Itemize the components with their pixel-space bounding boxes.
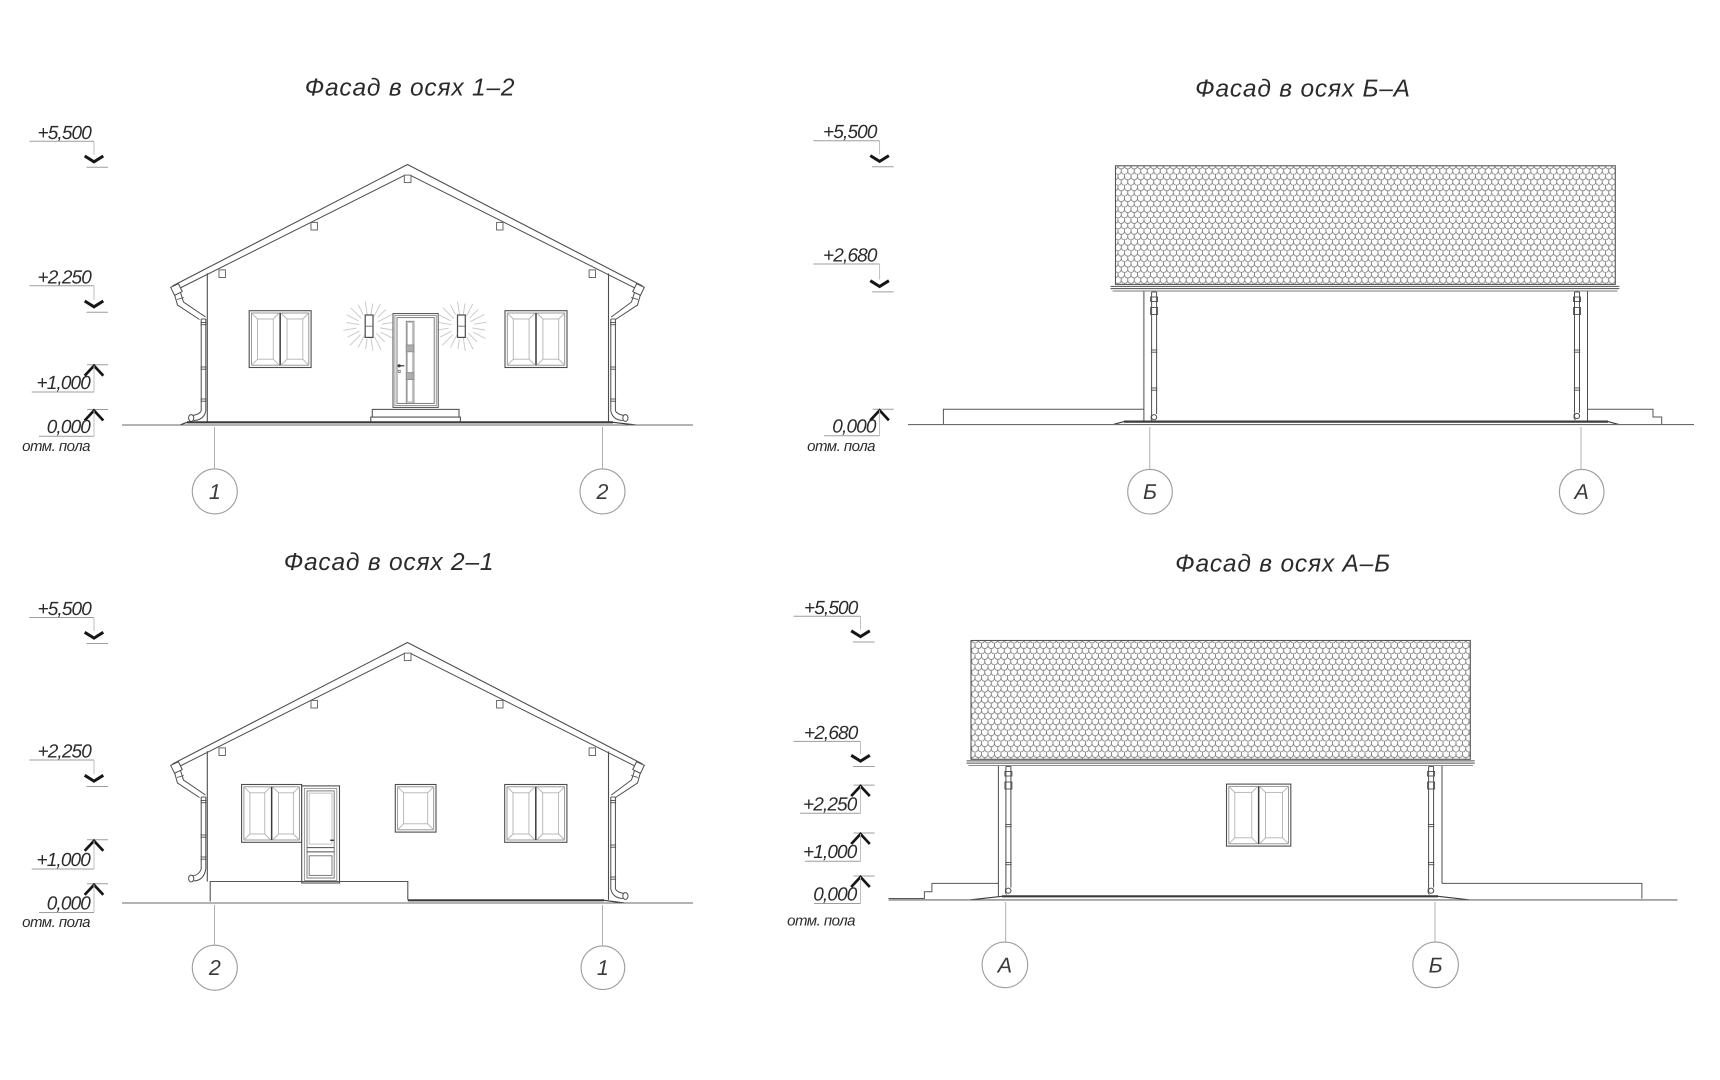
svg-text:Фасад в осях Б–А: Фасад в осях Б–А xyxy=(1195,76,1411,103)
svg-text:+2,680: +2,680 xyxy=(823,246,878,267)
svg-text:+5,500: +5,500 xyxy=(823,122,878,143)
svg-text:+5,500: +5,500 xyxy=(804,598,859,619)
svg-text:1: 1 xyxy=(597,956,609,980)
svg-text:0,000: 0,000 xyxy=(813,885,858,906)
svg-text:отм. пола: отм. пола xyxy=(22,914,90,931)
svg-text:0,000: 0,000 xyxy=(47,894,92,915)
svg-text:+2,680: +2,680 xyxy=(804,723,859,744)
svg-text:Фасад в осях 1–2: Фасад в осях 1–2 xyxy=(305,75,516,102)
svg-text:+1,000: +1,000 xyxy=(36,850,91,871)
svg-text:+1,000: +1,000 xyxy=(36,373,91,394)
svg-text:Фасад в осях 2–1: Фасад в осях 2–1 xyxy=(284,549,495,576)
svg-text:А: А xyxy=(1573,480,1589,504)
svg-text:+2,250: +2,250 xyxy=(37,267,92,288)
svg-text:+2,250: +2,250 xyxy=(803,794,858,815)
svg-text:Фасад в осях А–Б: Фасад в осях А–Б xyxy=(1175,551,1391,578)
svg-text:отм. пола: отм. пола xyxy=(22,438,90,455)
svg-text:+5,500: +5,500 xyxy=(37,123,92,144)
svg-text:+1,000: +1,000 xyxy=(803,842,858,863)
svg-text:1: 1 xyxy=(209,480,221,504)
svg-text:отм. пола: отм. пола xyxy=(787,912,855,929)
svg-text:Б: Б xyxy=(1143,480,1157,504)
svg-text:0,000: 0,000 xyxy=(832,417,877,438)
svg-text:отм. пола: отм. пола xyxy=(807,438,875,455)
svg-text:2: 2 xyxy=(596,480,609,504)
svg-text:+2,250: +2,250 xyxy=(37,742,92,763)
svg-text:2: 2 xyxy=(208,956,221,980)
svg-text:+5,500: +5,500 xyxy=(37,599,92,620)
svg-text:А: А xyxy=(996,953,1012,977)
svg-text:0,000: 0,000 xyxy=(47,417,92,438)
svg-text:Б: Б xyxy=(1429,953,1443,977)
